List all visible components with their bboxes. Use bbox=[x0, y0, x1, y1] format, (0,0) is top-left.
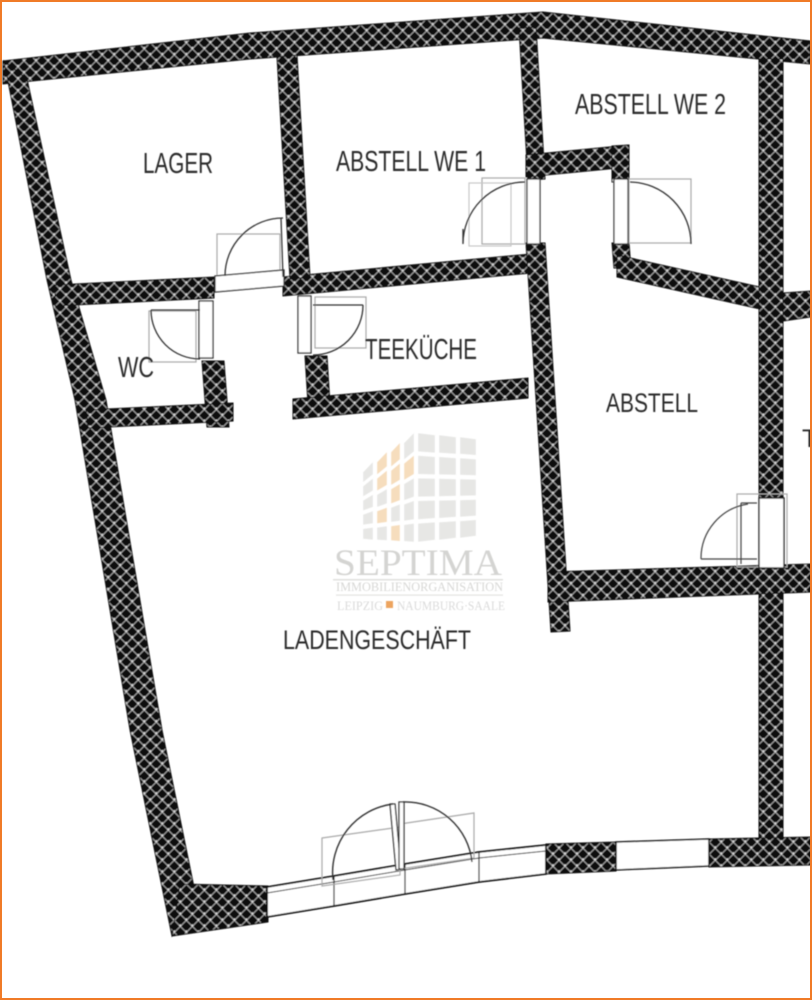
svg-text:ABSTELL WE 1: ABSTELL WE 1 bbox=[336, 146, 486, 178]
svg-text:ABSTELL WE 2: ABSTELL WE 2 bbox=[575, 89, 726, 121]
svg-text:LADENGESCHÄFT: LADENGESCHÄFT bbox=[283, 625, 471, 655]
svg-text:NAUMBURG·SAALE: NAUMBURG·SAALE bbox=[397, 599, 505, 613]
svg-text:TEEKÜCHE: TEEKÜCHE bbox=[365, 334, 477, 366]
svg-text:SEPTIMA: SEPTIMA bbox=[334, 543, 502, 584]
svg-text:LEIPZIG: LEIPZIG bbox=[337, 599, 383, 613]
svg-text:WC: WC bbox=[118, 352, 154, 384]
svg-text:LAGER: LAGER bbox=[143, 148, 213, 180]
svg-text:ABSTELL: ABSTELL bbox=[606, 388, 698, 418]
svg-text:IMMOBILIENORGANISATION: IMMOBILIENORGANISATION bbox=[336, 580, 503, 594]
